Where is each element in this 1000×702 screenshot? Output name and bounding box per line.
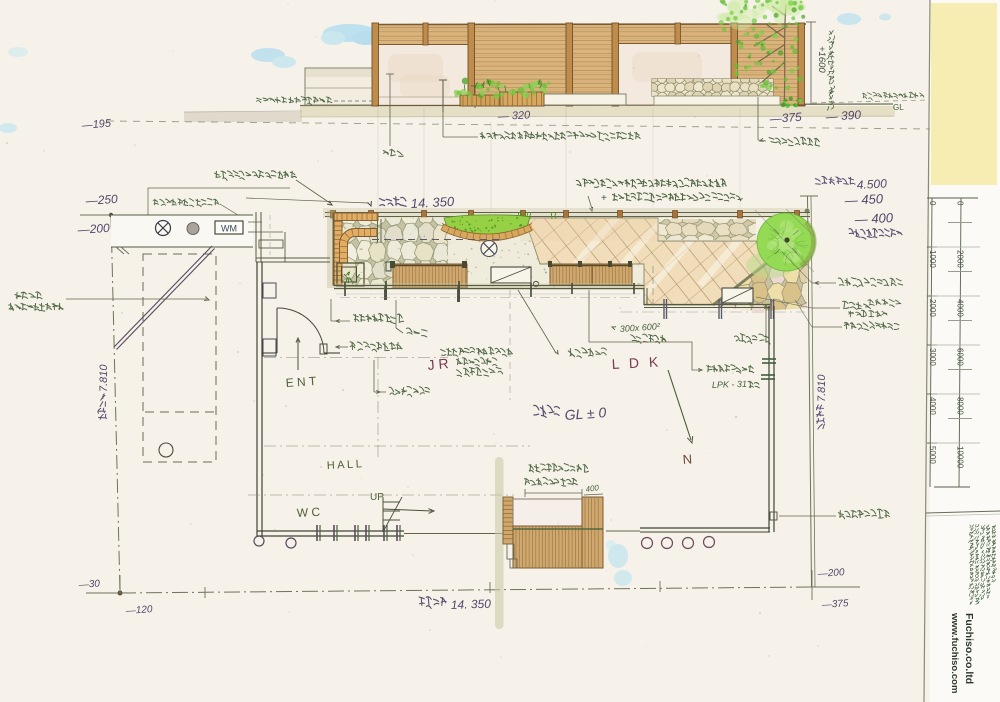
svg-text:Fuchiso.co.ltd: Fuchiso.co.ltd [963, 613, 975, 684]
svg-text:7.810: 7.810 [816, 374, 828, 402]
svg-text:5000: 5000 [928, 446, 937, 464]
svg-text:0: 0 [956, 201, 965, 206]
svg-text:14. 350: 14. 350 [451, 597, 492, 612]
svg-text:— 450: — 450 [843, 191, 884, 208]
svg-text:0: 0 [928, 201, 937, 206]
svg-text:400: 400 [585, 483, 600, 494]
svg-text:—375: —375 [768, 110, 802, 126]
svg-text:UP: UP [370, 492, 384, 503]
svg-text:L D K: L D K [611, 353, 661, 372]
svg-text:LPK - 31: LPK - 31 [712, 379, 747, 390]
svg-text:3000: 3000 [928, 348, 937, 366]
svg-text:— 400: — 400 [853, 210, 894, 227]
svg-text:—120: —120 [124, 604, 153, 617]
svg-text:—250: —250 [84, 192, 118, 208]
svg-text:2000: 2000 [956, 250, 965, 268]
svg-text:7.810: 7.810 [98, 364, 110, 392]
svg-text:10000: 10000 [956, 446, 965, 469]
svg-text:—200: —200 [816, 567, 845, 580]
svg-text:1000: 1000 [928, 250, 937, 268]
svg-text:—200: —200 [76, 221, 110, 237]
svg-text:WM: WM [221, 224, 237, 234]
svg-text:+: + [601, 193, 607, 204]
svg-text:4000: 4000 [956, 299, 965, 317]
svg-text:H A L L: H A L L [327, 458, 363, 472]
svg-text:W C: W C [296, 505, 320, 520]
svg-text:— 320: — 320 [497, 109, 532, 123]
svg-text:—375: —375 [820, 598, 849, 611]
svg-text:J R: J R [427, 355, 449, 373]
svg-text:4000: 4000 [928, 397, 937, 415]
svg-text:2000: 2000 [928, 299, 937, 317]
svg-text:www.fuchiso.com: www.fuchiso.com [949, 612, 960, 693]
svg-text:—30: —30 [77, 579, 100, 592]
svg-text:4.500: 4.500 [856, 176, 887, 192]
svg-text:N: N [682, 451, 692, 467]
svg-text:+1600: +1600 [816, 46, 827, 73]
svg-text:E N T: E N T [285, 374, 317, 390]
svg-text:14. 350: 14. 350 [410, 194, 455, 211]
svg-text:GL: GL [893, 103, 904, 112]
svg-text:— 390: — 390 [824, 108, 862, 125]
svg-text:8000: 8000 [956, 397, 965, 415]
svg-text:GL ± 0: GL ± 0 [564, 404, 607, 423]
svg-text:6000: 6000 [956, 348, 965, 366]
